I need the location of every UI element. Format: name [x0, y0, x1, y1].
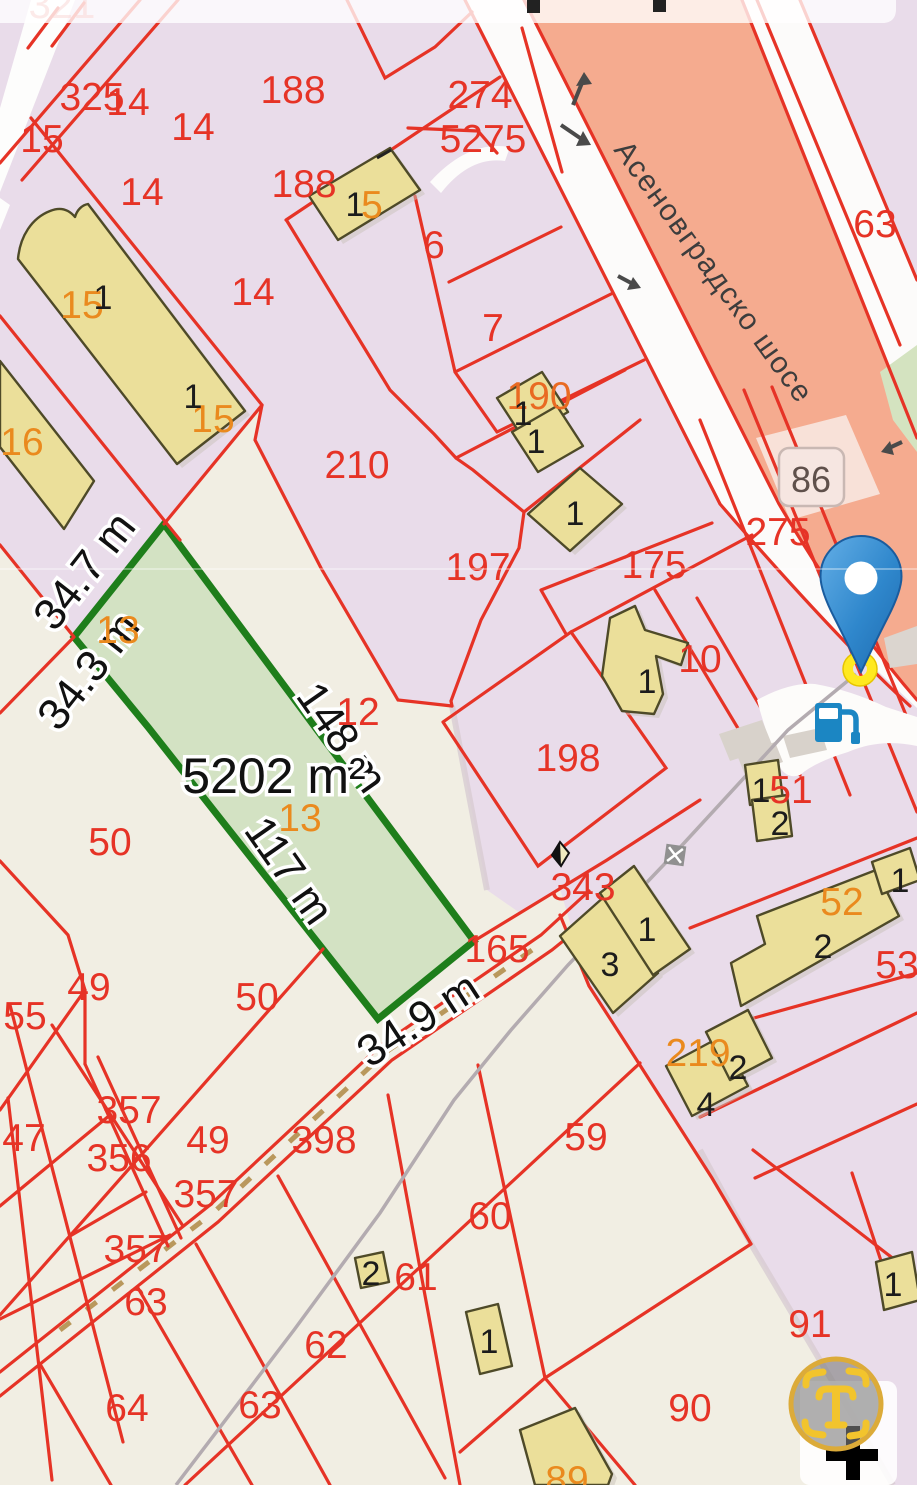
svg-text:210: 210 [324, 444, 389, 487]
svg-text:53: 53 [875, 944, 917, 987]
svg-text:63: 63 [238, 1384, 281, 1427]
svg-text:14: 14 [231, 271, 274, 314]
svg-text:12: 12 [336, 691, 379, 734]
svg-text:91: 91 [788, 1303, 831, 1346]
svg-text:1: 1 [184, 378, 203, 416]
svg-text:398: 398 [291, 1119, 356, 1162]
svg-text:4: 4 [697, 1086, 716, 1124]
svg-text:198: 198 [535, 737, 600, 780]
svg-text:2: 2 [814, 928, 833, 966]
svg-text:1: 1 [638, 911, 657, 949]
svg-text:1: 1 [566, 495, 585, 533]
svg-text:90: 90 [668, 1387, 711, 1430]
svg-text:14: 14 [106, 81, 149, 124]
svg-text:50: 50 [235, 976, 278, 1019]
svg-text:175: 175 [621, 544, 686, 587]
svg-text:275: 275 [745, 511, 810, 554]
svg-text:49: 49 [186, 1119, 229, 1162]
svg-text:14: 14 [120, 171, 163, 214]
svg-text:357: 357 [103, 1228, 168, 1271]
svg-text:14: 14 [171, 106, 214, 149]
svg-text:3: 3 [601, 946, 620, 984]
svg-text:59: 59 [564, 1116, 607, 1159]
svg-text:1: 1 [891, 862, 910, 900]
svg-text:188: 188 [271, 163, 336, 206]
svg-text:1: 1 [638, 663, 657, 701]
svg-text:47: 47 [2, 1117, 45, 1160]
svg-text:6: 6 [423, 224, 445, 267]
svg-text:343: 343 [550, 866, 615, 909]
svg-text:357: 357 [96, 1089, 161, 1132]
svg-text:219: 219 [665, 1032, 730, 1075]
svg-text:13: 13 [96, 609, 139, 652]
svg-text:1: 1 [884, 1266, 903, 1304]
svg-text:63: 63 [124, 1281, 167, 1324]
svg-text:86: 86 [791, 459, 831, 500]
svg-text:2: 2 [729, 1049, 748, 1087]
svg-text:1: 1 [752, 772, 771, 810]
svg-text:89: 89 [545, 1459, 588, 1485]
svg-text:5275: 5275 [440, 118, 527, 161]
svg-text:49: 49 [67, 966, 110, 1009]
svg-text:62: 62 [304, 1324, 347, 1367]
svg-text:197: 197 [445, 546, 510, 589]
svg-text:5202 m²: 5202 m² [182, 748, 365, 804]
svg-text:63: 63 [853, 203, 896, 246]
svg-text:13: 13 [278, 797, 321, 840]
svg-text:61: 61 [394, 1256, 437, 1299]
svg-text:1: 1 [527, 423, 546, 461]
svg-text:165: 165 [464, 928, 529, 971]
svg-text:15: 15 [20, 118, 63, 161]
svg-text:2: 2 [771, 805, 790, 843]
svg-text:356: 356 [86, 1137, 151, 1180]
svg-text:10: 10 [678, 638, 721, 681]
svg-text:1: 1 [346, 186, 365, 224]
svg-text:50: 50 [88, 821, 131, 864]
svg-text:1: 1 [94, 279, 113, 317]
svg-text:357: 357 [173, 1173, 238, 1216]
svg-text:55: 55 [3, 995, 46, 1038]
svg-text:1: 1 [480, 1323, 499, 1361]
svg-text:2: 2 [362, 1255, 381, 1293]
svg-text:7: 7 [482, 307, 504, 350]
svg-text:64: 64 [105, 1387, 148, 1430]
svg-text:52: 52 [820, 881, 863, 924]
svg-text:188: 188 [260, 69, 325, 112]
svg-text:274: 274 [447, 74, 512, 117]
svg-text:16: 16 [0, 421, 43, 464]
svg-text:60: 60 [468, 1195, 511, 1238]
